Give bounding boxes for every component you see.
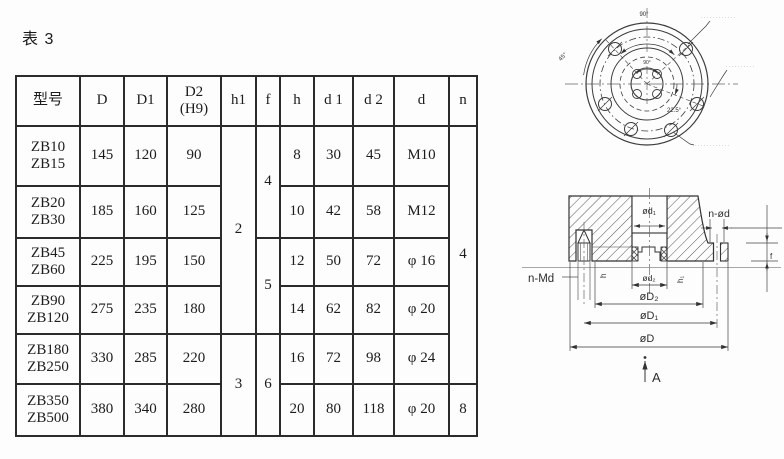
cell-d: M10 [394,126,449,186]
label-n-od: n-ød [708,208,730,220]
illegible-annotation: ·········· [726,64,756,69]
cell-d: φ 24 [394,334,449,384]
radial-line [647,84,703,106]
cell-D1: 340 [124,384,167,436]
cell-D2: 220 [167,334,221,384]
label-d2: ød₂ [642,273,655,283]
model-line: ZB500 [27,410,69,426]
cell-d: φ 20 [394,286,449,334]
cell-model: ZB180 ZB250 [16,334,80,384]
angle-225-arc [675,84,677,95]
col-header-model: 型号 [16,76,80,126]
col-header-D1: D1 [124,76,167,126]
cell-D: 145 [80,126,124,186]
spec-table: 型号 D D1 D2 (H9) h1 f h d 1 d 2 d n ZB10 … [15,75,478,437]
col-header-D: D [80,76,124,126]
cell-model: ZB45 ZB60 [16,238,80,286]
cell-h1-merged: 3 [221,334,256,436]
cell-d: φ 16 [394,238,449,286]
cell-model: ZB20 ZB30 [16,186,80,238]
cell-D: 225 [80,238,124,286]
cell-h: 14 [280,286,314,334]
cell-D1: 195 [124,238,167,286]
angle-225-label: 22.5° [667,108,682,114]
table-row: ZB180 ZB250 330 285 220 3 6 16 72 98 φ 2… [16,334,477,384]
label-h: h [599,274,608,278]
hub-angle-label: 90° [643,60,651,66]
cell-D1: 235 [124,286,167,334]
seal-block [661,247,667,261]
label-view-A: A [652,370,661,385]
radial-line [606,40,647,84]
col-header-f: f [256,76,280,126]
table-row: ZB10 ZB15 145 120 90 2 4 8 30 45 M10 4 [16,126,477,186]
scanned-spec-page: 表 3 型号 D D1 D2 (H9) h1 f h d 1 d 2 d n Z… [0,0,784,459]
label-h1: h₁ [676,276,685,283]
bolt-holes [598,42,704,137]
cell-f-merged: 6 [256,334,280,436]
col-header-n: n [449,76,477,126]
cell-D2: 280 [167,384,221,436]
label-D: øD [640,333,655,345]
col-header-d1: d 1 [314,76,353,126]
cell-d2: 72 [353,238,394,286]
cell-f-merged: 5 [256,238,280,334]
cell-n-merged: 8 [449,384,477,436]
view-arrow-dot [644,356,647,359]
cell-h: 10 [280,186,314,238]
cell-D2: 125 [167,186,221,238]
cell-D2: 90 [167,126,221,186]
col-header-D2-line1: D2 [168,84,220,101]
cell-D2: 150 [167,238,221,286]
label-f: f [770,252,773,261]
illegible-annotation: ············ [695,143,731,148]
cell-D: 380 [80,384,124,436]
cell-h: 8 [280,126,314,186]
illegible-annotation: ············ [701,15,737,20]
cell-d: M12 [394,186,449,238]
model-line: ZB45 [31,245,65,261]
cell-d2: 118 [353,384,394,436]
col-header-d2: d 2 [353,76,394,126]
cell-D1: 160 [124,186,167,238]
cell-model: ZB10 ZB15 [16,126,80,186]
cell-f-merged: 4 [256,126,280,238]
cell-d: φ 20 [394,384,449,436]
seal-block [632,247,638,261]
flange-section-view [522,188,782,382]
cell-h: 16 [280,334,314,384]
cell-d1: 50 [314,238,353,286]
angle-90-label: 90° [639,12,649,18]
section-right-block [667,196,714,261]
cell-n-merged: 4 [449,126,477,384]
model-line: ZB90 [31,293,65,309]
model-line: ZB30 [31,212,65,228]
cell-d1: 72 [314,334,353,384]
cell-h: 12 [280,238,314,286]
col-header-h1: h1 [221,76,256,126]
leader-line [688,21,710,44]
cell-d1: 62 [314,286,353,334]
leader-line [673,132,694,145]
cell-model: ZB350 ZB500 [16,384,80,436]
col-header-D2-line2: (H9) [168,101,220,118]
cell-d2: 82 [353,286,394,334]
cell-d1: 42 [314,186,353,238]
cell-d2: 45 [353,126,394,186]
flange-front-view [565,8,738,145]
label-D1: øD₁ [640,310,659,322]
model-line: ZB10 [31,139,65,155]
cell-D1: 120 [124,126,167,186]
cell-d1: 80 [314,384,353,436]
cell-d1: 30 [314,126,353,186]
cell-D2: 180 [167,286,221,334]
cell-d2: 58 [353,186,394,238]
col-header-d: d [394,76,449,126]
model-line: ZB350 [27,393,69,409]
cell-h: 20 [280,384,314,436]
section-rim-end [721,243,729,261]
label-n-md: n-Md [528,273,554,285]
technical-drawings: 90° 45° 22.5° 90° ············ ·········… [520,0,784,459]
model-line: ZB250 [27,359,69,375]
cell-d2: 98 [353,334,394,384]
model-line: ZB60 [31,262,65,278]
angle-45-label: 45° [558,52,569,63]
model-line: ZB15 [31,156,65,172]
label-D2: øD₂ [640,291,659,303]
col-header-h: h [280,76,314,126]
cell-model: ZB90 ZB120 [16,286,80,334]
cell-D: 275 [80,286,124,334]
cell-h1-merged: 2 [221,126,256,334]
label-d1: ød₁ [642,206,656,216]
model-line: ZB180 [27,342,69,358]
page-title: 表 3 [22,25,54,49]
cell-D: 330 [80,334,124,384]
model-line: ZB120 [27,310,69,326]
col-header-D2: D2 (H9) [167,76,221,126]
header-row: 型号 D D1 D2 (H9) h1 f h d 1 d 2 d n [16,76,477,126]
leader-line [710,70,727,97]
model-line: ZB20 [31,195,65,211]
cell-D1: 285 [124,334,167,384]
center-boss [638,247,660,261]
cell-D: 185 [80,186,124,238]
